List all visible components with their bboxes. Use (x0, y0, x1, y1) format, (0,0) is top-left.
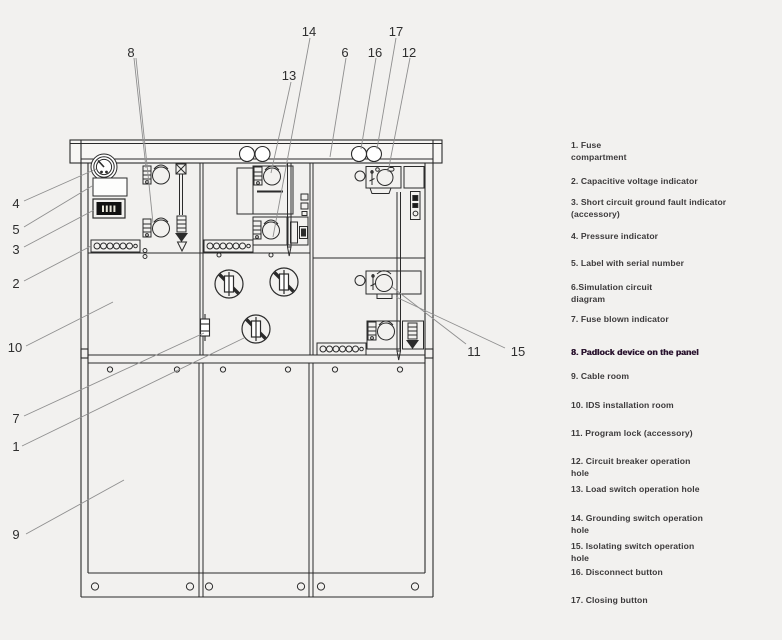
legend-item-5: 5. Label with serial number (571, 257, 777, 269)
legend-item-1: 1. Fusecompartment (571, 139, 777, 163)
legend-item-9: 9. Cable room (571, 370, 777, 382)
legend-item-10: 10. IDS installation room (571, 399, 777, 411)
legend-item-5-line: 5. Label with serial number (571, 257, 777, 269)
legend-item-8: 8. Padlock device on the panel (571, 346, 777, 358)
legend-item-1-line: 1. Fuse (571, 139, 777, 151)
legend-item-3-line: (accessory) (571, 208, 777, 220)
legend: 1. Fusecompartment2. Capacitive voltage … (0, 0, 782, 635)
legend-item-7: 7. Fuse blown indicator (571, 313, 777, 325)
legend-item-16: 16. Disconnect button (571, 566, 777, 578)
legend-item-12: 12. Circuit breaker operationhole (571, 455, 777, 479)
legend-item-2: 2. Capacitive voltage indicator (571, 175, 777, 187)
legend-item-14-line: hole (571, 524, 777, 536)
legend-item-11: 11. Program lock (accessory) (571, 427, 777, 439)
legend-item-13-line: 13. Load switch operation hole (571, 483, 777, 495)
legend-item-4-line: 4. Pressure indicator (571, 230, 777, 242)
legend-item-14: 14. Grounding switch operationhole (571, 512, 777, 536)
legend-item-6-line: diagram (571, 293, 777, 305)
legend-item-1-line: compartment (571, 151, 777, 163)
legend-item-2-line: 2. Capacitive voltage indicator (571, 175, 777, 187)
legend-item-15-line: hole (571, 552, 777, 564)
legend-item-6-line: 6.Simulation circuit (571, 281, 777, 293)
legend-item-10-line: 10. IDS installation room (571, 399, 777, 411)
legend-item-16-line: 16. Disconnect button (571, 566, 777, 578)
legend-item-11-line: 11. Program lock (accessory) (571, 427, 777, 439)
screenshot-stage: 8 13 14 6 16 17 12 4 5 3 2 10 7 1 9 11 1… (0, 0, 782, 635)
legend-item-15: 15. Isolating switch operationhole (571, 540, 777, 564)
legend-item-6: 6.Simulation circuitdiagram (571, 281, 777, 305)
legend-item-3: 3. Short circuit ground fault indicator(… (571, 196, 777, 220)
legend-item-15-line: 15. Isolating switch operation (571, 540, 777, 552)
legend-item-9-line: 9. Cable room (571, 370, 777, 382)
legend-item-7-line: 7. Fuse blown indicator (571, 313, 777, 325)
legend-item-17-line: 17. Closing button (571, 594, 777, 606)
legend-item-3-line: 3. Short circuit ground fault indicator (571, 196, 777, 208)
legend-item-12-line: 12. Circuit breaker operation (571, 455, 777, 467)
legend-item-13: 13. Load switch operation hole (571, 483, 777, 495)
legend-item-8-line: 8. Padlock device on the panel (571, 346, 777, 358)
legend-item-17: 17. Closing button (571, 594, 777, 606)
legend-item-12-line: hole (571, 467, 777, 479)
legend-item-14-line: 14. Grounding switch operation (571, 512, 777, 524)
legend-item-4: 4. Pressure indicator (571, 230, 777, 242)
